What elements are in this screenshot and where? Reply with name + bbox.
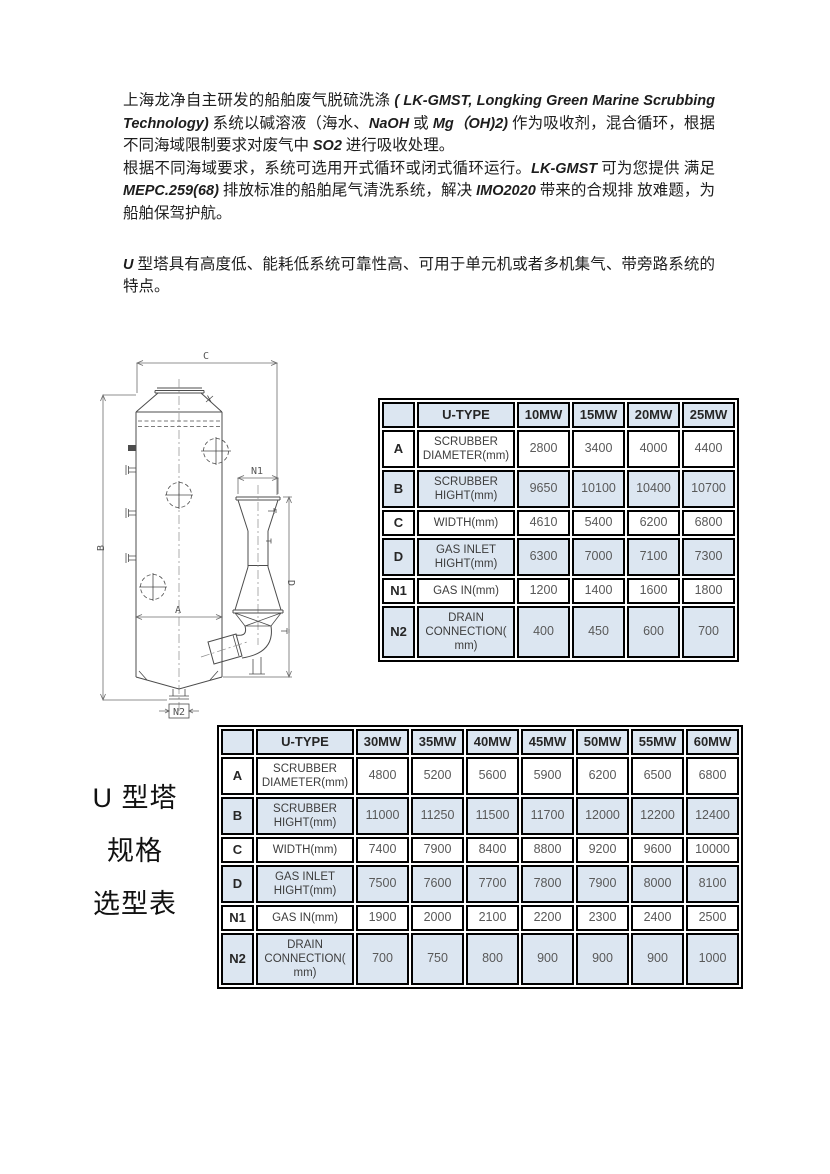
row-key-cell: D bbox=[221, 865, 254, 903]
table-row: CWIDTH(mm)4610540062006800 bbox=[382, 510, 735, 536]
value-cell: 7800 bbox=[521, 865, 574, 903]
row-label-cell: DRAIN CONNECTION( mm) bbox=[256, 933, 354, 985]
text-segment: U bbox=[123, 257, 133, 273]
mw-header-cell: 15MW bbox=[572, 402, 625, 428]
row-key-cell: D bbox=[382, 538, 415, 576]
row-label-cell: GAS IN(mm) bbox=[256, 905, 354, 931]
value-cell: 4610 bbox=[517, 510, 570, 536]
value-cell: 5400 bbox=[572, 510, 625, 536]
text-segment: LK-GMST bbox=[531, 161, 597, 177]
dimension-d: D bbox=[223, 497, 296, 677]
value-cell: 800 bbox=[466, 933, 519, 985]
table-row: N2DRAIN CONNECTION( mm)400450600700 bbox=[382, 606, 735, 658]
text-segment: 型塔具有高度低、能耗低系统可靠性高、可用于单元机或者多机集气、带旁路系统的特点。 bbox=[123, 256, 715, 296]
corner-cell bbox=[382, 402, 415, 428]
text-segment: MEPC.259(68) bbox=[123, 183, 219, 199]
value-cell: 450 bbox=[572, 606, 625, 658]
paragraph-u-tower-features: U 型塔具有高度低、能耗低系统可靠性高、可用于单元机或者多机集气、带旁路系统的特… bbox=[123, 254, 715, 298]
text-segment: NaOH bbox=[369, 116, 409, 132]
dim-label-c: C bbox=[203, 351, 209, 362]
dim-label-a: A bbox=[175, 605, 181, 616]
row-key-cell: N2 bbox=[221, 933, 254, 985]
value-cell: 7400 bbox=[356, 837, 409, 863]
value-cell: 2400 bbox=[631, 905, 684, 931]
value-cell: 12200 bbox=[631, 797, 684, 835]
value-cell: 6500 bbox=[631, 757, 684, 795]
row-label-cell: SCRUBBER DIAMETER(mm) bbox=[256, 757, 354, 795]
table-row: N1GAS IN(mm)1900200021002200230024002500 bbox=[221, 905, 739, 931]
dim-label-n1: N1 bbox=[251, 466, 263, 477]
value-cell: 11500 bbox=[466, 797, 519, 835]
header-row: U-TYPE30MW35MW40MW45MW50MW55MW60MW bbox=[221, 729, 739, 755]
value-cell: 11700 bbox=[521, 797, 574, 835]
utype-header-cell: U-TYPE bbox=[417, 402, 515, 428]
value-cell: 5900 bbox=[521, 757, 574, 795]
tower-outline bbox=[136, 379, 222, 711]
value-cell: 8400 bbox=[466, 837, 519, 863]
side-nozzles bbox=[126, 445, 136, 563]
row-key-cell: C bbox=[382, 510, 415, 536]
row-label-cell: SCRUBBER DIAMETER(mm) bbox=[417, 430, 515, 468]
value-cell: 4000 bbox=[627, 430, 680, 468]
value-cell: 8800 bbox=[521, 837, 574, 863]
value-cell: 2200 bbox=[521, 905, 574, 931]
manholes bbox=[139, 437, 231, 601]
value-cell: 12000 bbox=[576, 797, 629, 835]
row-key-cell: B bbox=[221, 797, 254, 835]
value-cell: 900 bbox=[631, 933, 684, 985]
value-cell: 7600 bbox=[411, 865, 464, 903]
table-row: N2DRAIN CONNECTION( mm)70075080090090090… bbox=[221, 933, 739, 985]
value-cell: 9200 bbox=[576, 837, 629, 863]
gas-inlet-duct: N1 bbox=[201, 466, 289, 674]
row-label-cell: WIDTH(mm) bbox=[256, 837, 354, 863]
caption-line: 规格 bbox=[74, 825, 196, 878]
paragraph-scrubbing-intro: 上海龙净自主研发的船舶废气脱硫洗涤 ( LK-GMST, Longking Gr… bbox=[123, 90, 715, 158]
value-cell: 12400 bbox=[686, 797, 739, 835]
table-row: DGAS INLET HIGHT(mm)6300700071007300 bbox=[382, 538, 735, 576]
value-cell: 8000 bbox=[631, 865, 684, 903]
value-cell: 10700 bbox=[682, 470, 735, 508]
value-cell: 1200 bbox=[517, 578, 570, 604]
table-row: CWIDTH(mm)74007900840088009200960010000 bbox=[221, 837, 739, 863]
value-cell: 1900 bbox=[356, 905, 409, 931]
row-key-cell: N1 bbox=[221, 905, 254, 931]
table-row: ASCRUBBER DIAMETER(mm)2800340040004400 bbox=[382, 430, 735, 468]
value-cell: 1400 bbox=[572, 578, 625, 604]
row-label-cell: SCRUBBER HIGHT(mm) bbox=[256, 797, 354, 835]
value-cell: 600 bbox=[627, 606, 680, 658]
spec-table-10-25mw: U-TYPE10MW15MW20MW25MWASCRUBBER DIAMETER… bbox=[378, 398, 739, 662]
value-cell: 8100 bbox=[686, 865, 739, 903]
mw-header-cell: 20MW bbox=[627, 402, 680, 428]
value-cell: 7500 bbox=[356, 865, 409, 903]
value-cell: 10000 bbox=[686, 837, 739, 863]
value-cell: 7000 bbox=[572, 538, 625, 576]
value-cell: 5200 bbox=[411, 757, 464, 795]
value-cell: 7900 bbox=[576, 865, 629, 903]
mw-header-cell: 55MW bbox=[631, 729, 684, 755]
value-cell: 2100 bbox=[466, 905, 519, 931]
utype-header-cell: U-TYPE bbox=[256, 729, 354, 755]
row-key-cell: A bbox=[382, 430, 415, 468]
value-cell: 7100 bbox=[627, 538, 680, 576]
dim-label-b: B bbox=[96, 545, 107, 551]
value-cell: 10400 bbox=[627, 470, 680, 508]
value-cell: 400 bbox=[517, 606, 570, 658]
value-cell: 2000 bbox=[411, 905, 464, 931]
row-key-cell: N1 bbox=[382, 578, 415, 604]
value-cell: 900 bbox=[521, 933, 574, 985]
table-row: BSCRUBBER HIGHT(mm)110001125011500117001… bbox=[221, 797, 739, 835]
value-cell: 4800 bbox=[356, 757, 409, 795]
row-label-cell: WIDTH(mm) bbox=[417, 510, 515, 536]
dim-label-n2: N2 bbox=[173, 707, 185, 718]
table-row: BSCRUBBER HIGHT(mm)9650101001040010700 bbox=[382, 470, 735, 508]
value-cell: 750 bbox=[411, 933, 464, 985]
header-row: U-TYPE10MW15MW20MW25MW bbox=[382, 402, 735, 428]
corner-cell bbox=[221, 729, 254, 755]
text-segment: 可为您提供 满足 bbox=[597, 160, 715, 177]
row-key-cell: N2 bbox=[382, 606, 415, 658]
value-cell: 7900 bbox=[411, 837, 464, 863]
value-cell: 5600 bbox=[466, 757, 519, 795]
value-cell: 2300 bbox=[576, 905, 629, 931]
paragraph-operation-modes: 根据不同海域要求，系统可选用开式循环或闭式循环运行。LK-GMST 可为您提供 … bbox=[123, 158, 715, 225]
value-cell: 7700 bbox=[466, 865, 519, 903]
row-key-cell: C bbox=[221, 837, 254, 863]
mw-header-cell: 45MW bbox=[521, 729, 574, 755]
value-cell: 9600 bbox=[631, 837, 684, 863]
row-label-cell: GAS IN(mm) bbox=[417, 578, 515, 604]
value-cell: 2500 bbox=[686, 905, 739, 931]
value-cell: 1800 bbox=[682, 578, 735, 604]
scrubber-technical-drawing: C B bbox=[95, 345, 335, 725]
table-row: N1GAS IN(mm)1200140016001800 bbox=[382, 578, 735, 604]
row-label-cell: SCRUBBER HIGHT(mm) bbox=[417, 470, 515, 508]
dimension-b: B bbox=[96, 395, 167, 700]
document-page: 上海龙净自主研发的船舶废气脱硫洗涤 ( LK-GMST, Longking Gr… bbox=[0, 0, 830, 1174]
value-cell: 6200 bbox=[627, 510, 680, 536]
row-label-cell: GAS INLET HIGHT(mm) bbox=[256, 865, 354, 903]
row-label-cell: DRAIN CONNECTION( mm) bbox=[417, 606, 515, 658]
text-segment: 或 bbox=[409, 115, 433, 132]
value-cell: 10100 bbox=[572, 470, 625, 508]
mw-header-cell: 60MW bbox=[686, 729, 739, 755]
text-segment: 根据不同海域要求，系统可选用开式循环或闭式循环运行。 bbox=[123, 160, 531, 177]
row-key-cell: A bbox=[221, 757, 254, 795]
value-cell: 700 bbox=[682, 606, 735, 658]
value-cell: 7300 bbox=[682, 538, 735, 576]
value-cell: 4400 bbox=[682, 430, 735, 468]
text-segment: 进行吸收处理。 bbox=[342, 137, 454, 154]
text-segment: 上海龙净自主研发的船舶废气脱硫洗涤 bbox=[123, 92, 394, 109]
table-row: ASCRUBBER DIAMETER(mm)480052005600590062… bbox=[221, 757, 739, 795]
value-cell: 1000 bbox=[686, 933, 739, 985]
value-cell: 6300 bbox=[517, 538, 570, 576]
value-cell: 700 bbox=[356, 933, 409, 985]
row-label-cell: GAS INLET HIGHT(mm) bbox=[417, 538, 515, 576]
value-cell: 11000 bbox=[356, 797, 409, 835]
text-segment: SO2 bbox=[313, 138, 342, 154]
table-title-vertical: U 型塔 规格 选型表 bbox=[74, 772, 196, 931]
mw-header-cell: 10MW bbox=[517, 402, 570, 428]
mw-header-cell: 30MW bbox=[356, 729, 409, 755]
mw-header-cell: 50MW bbox=[576, 729, 629, 755]
value-cell: 6800 bbox=[686, 757, 739, 795]
dim-label-d: D bbox=[285, 580, 296, 586]
value-cell: 1600 bbox=[627, 578, 680, 604]
spec-table-30-60mw: U-TYPE30MW35MW40MW45MW50MW55MW60MWASCRUB… bbox=[217, 725, 743, 989]
dimension-a: A bbox=[136, 605, 222, 620]
text-segment: Mg（OH)2) bbox=[433, 116, 508, 132]
value-cell: 900 bbox=[576, 933, 629, 985]
mw-header-cell: 35MW bbox=[411, 729, 464, 755]
text-segment: 系统以碱溶液（海水、 bbox=[209, 115, 369, 132]
text-segment: 排放标准的船舶尾气清洗系统，解决 bbox=[219, 182, 476, 199]
value-cell: 6200 bbox=[576, 757, 629, 795]
value-cell: 6800 bbox=[682, 510, 735, 536]
intro-paragraphs: 上海龙净自主研发的船舶废气脱硫洗涤 ( LK-GMST, Longking Gr… bbox=[123, 90, 715, 298]
mw-header-cell: 40MW bbox=[466, 729, 519, 755]
table-row: DGAS INLET HIGHT(mm)75007600770078007900… bbox=[221, 865, 739, 903]
mw-header-cell: 25MW bbox=[682, 402, 735, 428]
row-key-cell: B bbox=[382, 470, 415, 508]
value-cell: 9650 bbox=[517, 470, 570, 508]
value-cell: 11250 bbox=[411, 797, 464, 835]
value-cell: 3400 bbox=[572, 430, 625, 468]
text-segment: IMO2020 bbox=[476, 183, 536, 199]
caption-line: 选型表 bbox=[74, 878, 196, 931]
caption-line: U 型塔 bbox=[74, 772, 196, 825]
value-cell: 2800 bbox=[517, 430, 570, 468]
